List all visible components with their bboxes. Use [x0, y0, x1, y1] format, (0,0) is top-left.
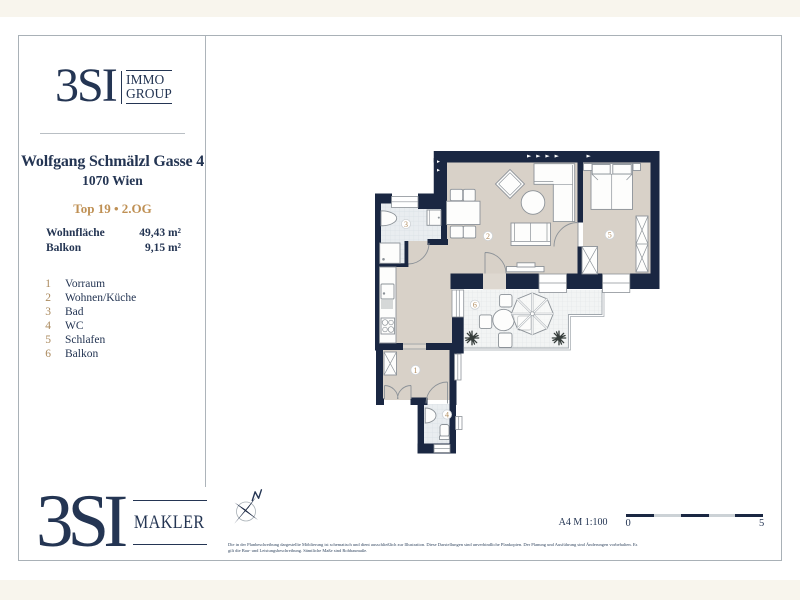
svg-text:1: 1 — [414, 366, 418, 375]
svg-text:5: 5 — [608, 231, 612, 240]
svg-text:6: 6 — [473, 301, 477, 310]
svg-text:3: 3 — [404, 220, 408, 229]
svg-text:2: 2 — [486, 232, 490, 241]
svg-text:4: 4 — [445, 411, 449, 420]
